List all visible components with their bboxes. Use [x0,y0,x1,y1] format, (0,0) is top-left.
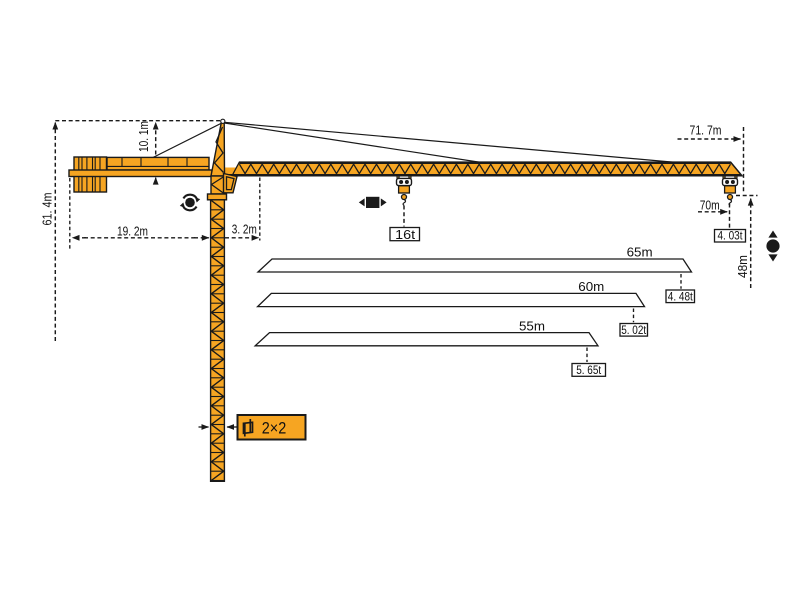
svg-text:4. 03t: 4. 03t [718,229,744,243]
svg-text:3. 2m: 3. 2m [232,223,257,237]
svg-text:55m: 55m [519,319,545,333]
svg-text:4. 48t: 4. 48t [668,289,694,303]
svg-text:5. 02t: 5. 02t [621,323,647,337]
svg-text:16t: 16t [395,227,415,242]
svg-text:61. 4m: 61. 4m [40,193,54,226]
svg-text:2×2: 2×2 [262,418,287,437]
svg-text:19. 2m: 19. 2m [117,225,148,239]
svg-text:10. 1m: 10. 1m [137,121,151,152]
svg-text:70m: 70m [700,199,720,213]
svg-text:71. 7m: 71. 7m [690,124,722,138]
svg-text:5. 65t: 5. 65t [576,363,602,377]
svg-text:48m: 48m [736,255,750,278]
svg-text:65m: 65m [627,245,653,259]
svg-text:60m: 60m [578,280,604,294]
